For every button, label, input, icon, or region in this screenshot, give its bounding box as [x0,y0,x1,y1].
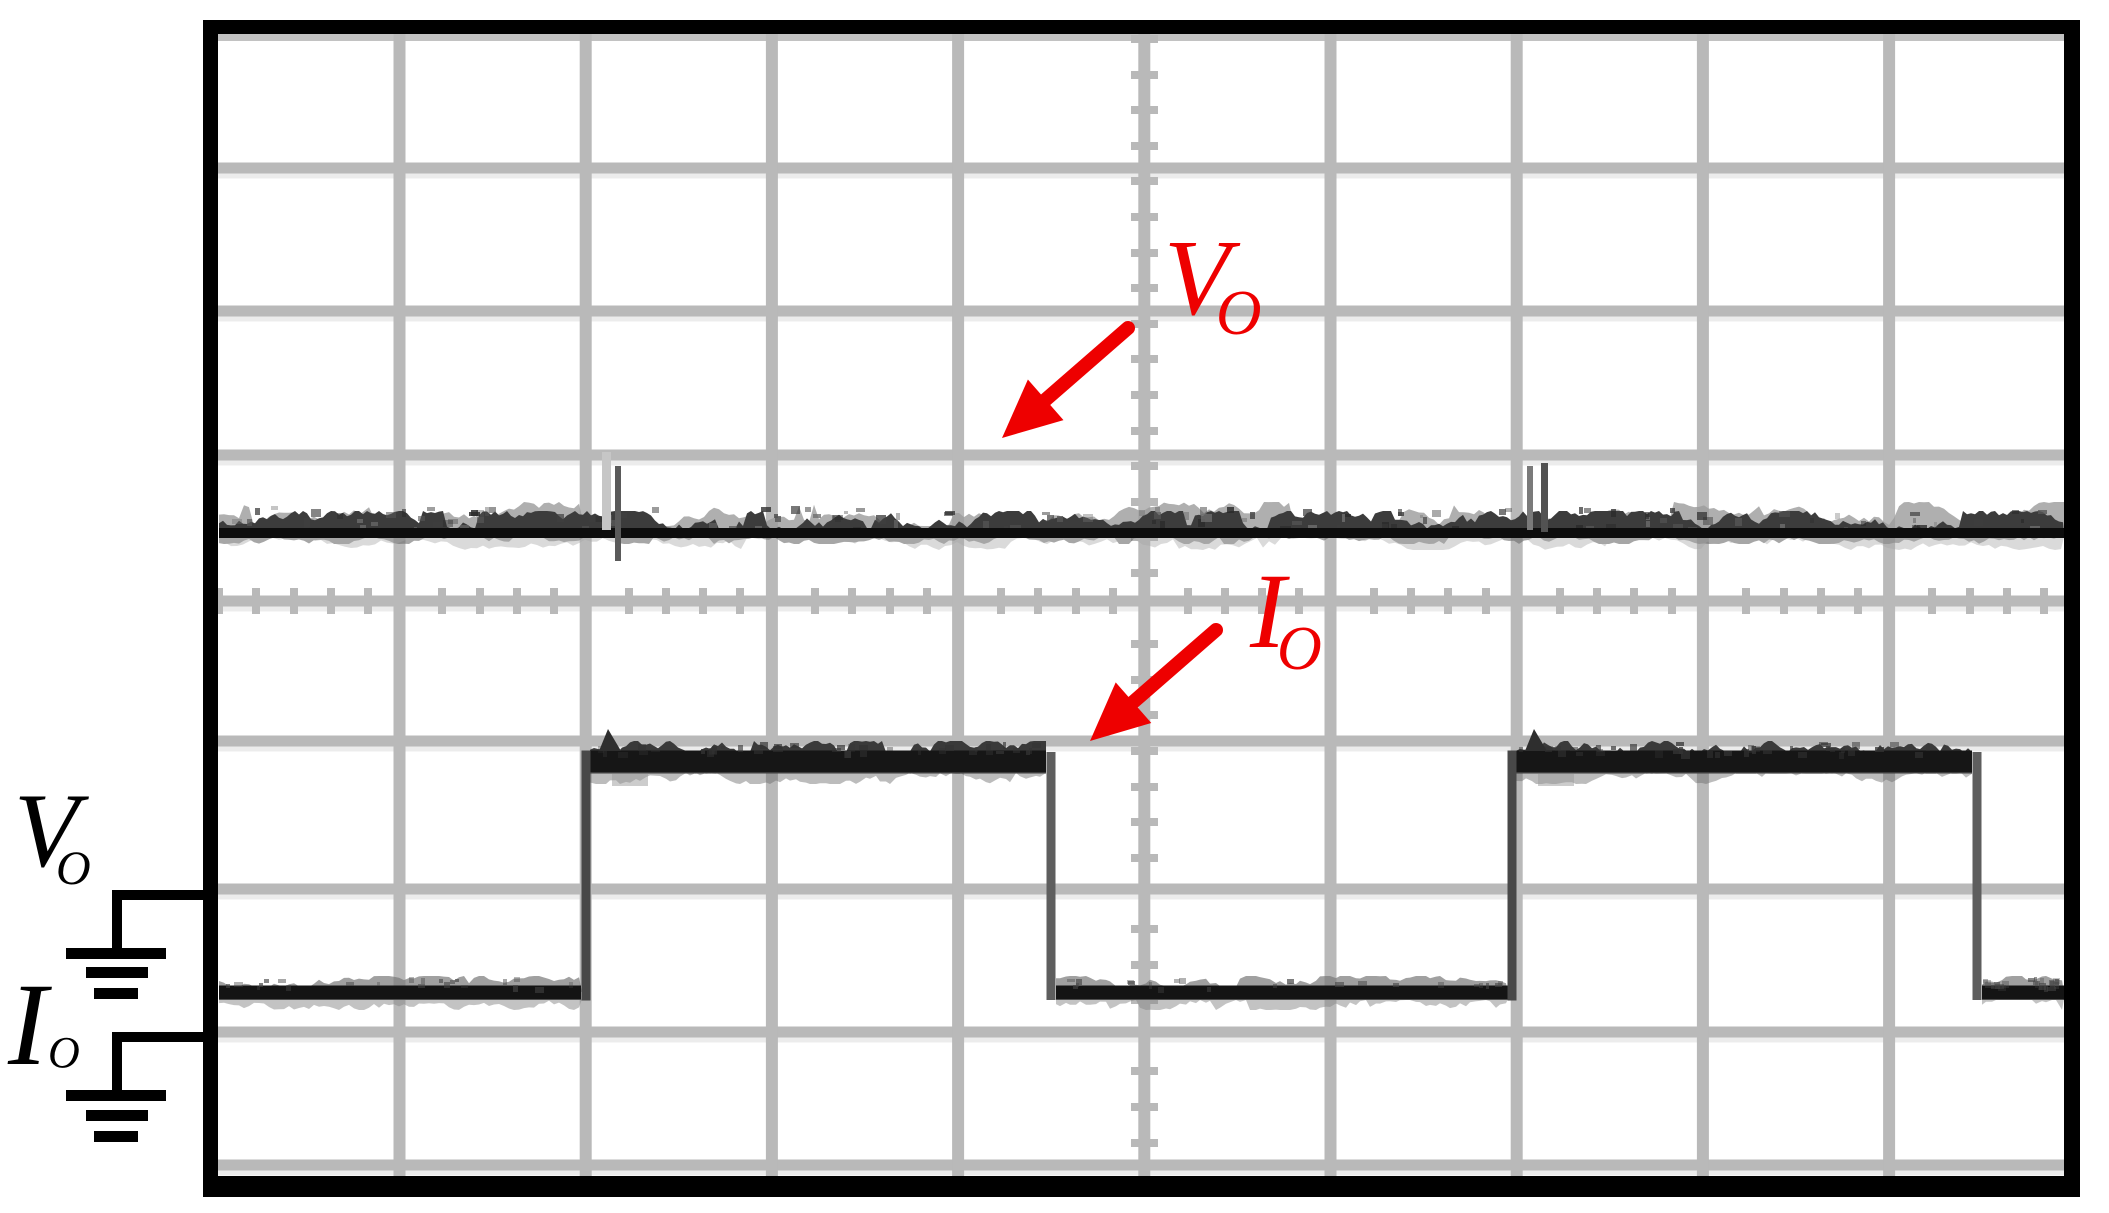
svg-text:O: O [48,1028,80,1077]
svg-text:O: O [56,842,91,895]
svg-text:O: O [1277,615,1322,683]
svg-text:I: I [7,959,52,1090]
svg-text:O: O [1216,278,1262,348]
